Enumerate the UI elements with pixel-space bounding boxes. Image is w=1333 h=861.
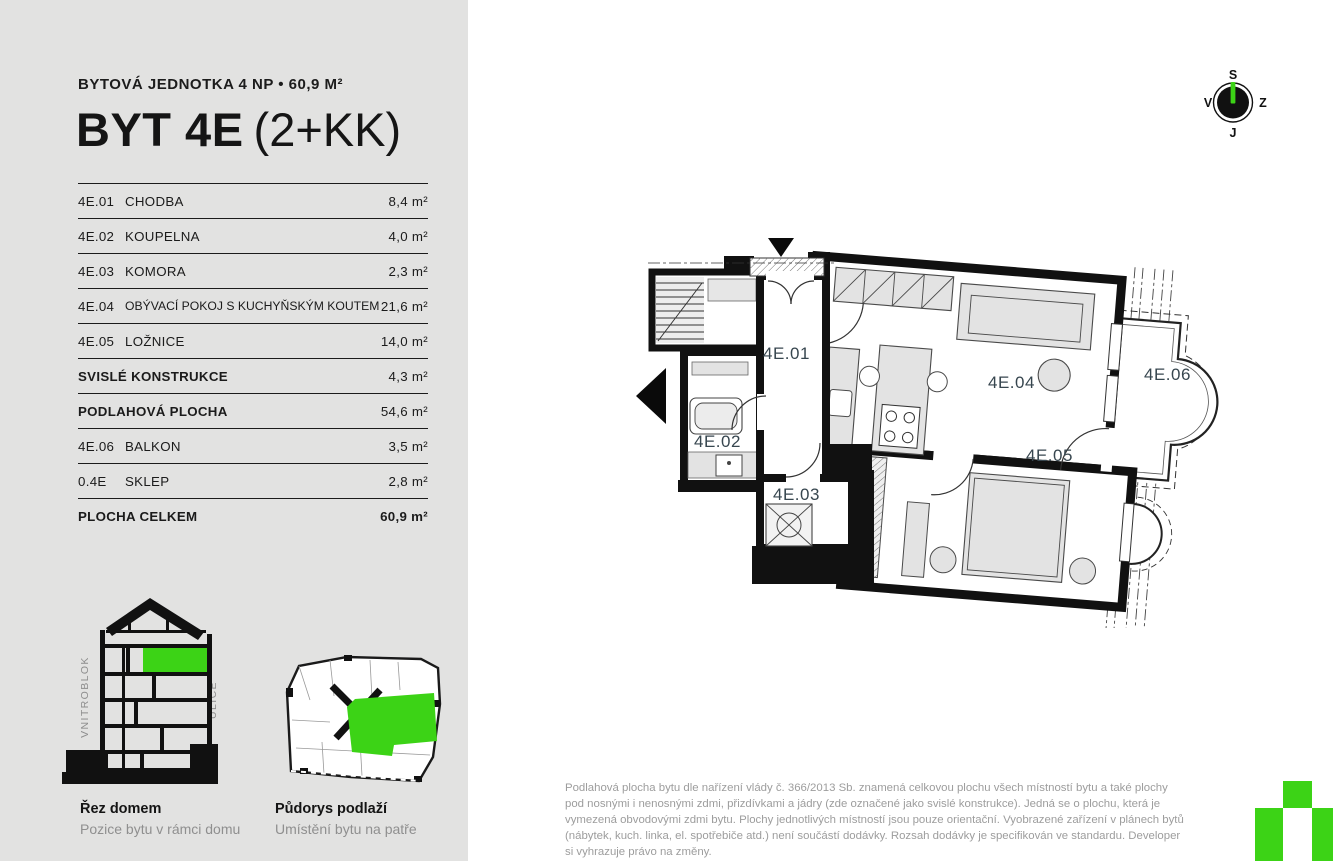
room-code: 4E.04 (78, 299, 125, 314)
bed (962, 473, 1070, 583)
room-label-hallway: 4E.01 (763, 344, 810, 363)
section-label-left: VNITROBLOK (79, 656, 91, 738)
logo-block-right (1312, 808, 1333, 861)
bathroom-shelf (692, 362, 748, 375)
room-code: 4E.02 (78, 229, 125, 244)
table-row: 4E.03KOMORA2,3 m² (78, 253, 428, 288)
room-label-balcony: 4E.06 (1144, 365, 1191, 384)
room-area: 60,9 m² (380, 509, 428, 524)
apartment-sheet: BYTOVÁ JEDNOTKA 4 NP • 60,9 M² BYT 4E(2+… (0, 0, 1333, 861)
room-label-bedroom: 4E.05 (1026, 446, 1073, 465)
compass-label-west: V (1204, 96, 1213, 110)
door-gap (757, 394, 767, 430)
room-code: 0.4E (78, 474, 125, 489)
area-table: 4E.01CHODBA8,4 m² 4E.02KOUPELNA4,0 m² 4E… (78, 183, 428, 533)
logo-block-left (1255, 808, 1283, 861)
compass-label-south: J (1230, 126, 1237, 140)
table-row: 4E.04OBÝVACÍ POKOJ S KUCHYŇSKÝM KOUTEM21… (78, 288, 428, 323)
room-name: KOUPELNA (125, 229, 389, 244)
bathtub-inner (695, 403, 737, 429)
stair-landing (708, 279, 756, 301)
stove (879, 404, 920, 448)
room-area: 2,8 m² (389, 474, 428, 489)
room-balcony (1110, 318, 1223, 484)
room-name: OBÝVACÍ POKOJ S KUCHYŇSKÝM KOUTEM (125, 299, 381, 313)
room-name: PLOCHA CELKEM (78, 509, 380, 524)
door-gap (766, 271, 814, 282)
unit-subtitle: BYTOVÁ JEDNOTKA 4 NP • 60,9 M² (78, 76, 343, 93)
table-row: 0.4ESKLEP2,8 m² (78, 463, 428, 498)
bay-rail (1129, 504, 1164, 566)
table-row: 4E.01CHODBA8,4 m² (78, 183, 428, 218)
room-area: 21,6 m² (381, 299, 428, 314)
floor-overview-diagram (265, 648, 450, 800)
sink (828, 389, 852, 417)
drain (727, 461, 731, 465)
room-name: CHODBA (125, 194, 389, 209)
table-row: 4E.05LOŽNICE14,0 m² (78, 323, 428, 358)
page-title: BYT 4E(2+KK) (76, 102, 401, 157)
table-row-total: PLOCHA CELKEM60,9 m² (78, 498, 428, 533)
room-label-bathroom: 4E.02 (694, 432, 741, 451)
compass-label-east: Z (1259, 96, 1267, 110)
room-label-storage: 4E.03 (773, 485, 820, 504)
section-caption-subtitle: Pozice bytu v rámci domu (80, 821, 240, 837)
logo-block-top (1283, 781, 1312, 808)
room-code: 4E.06 (78, 439, 125, 454)
section-caption-title: Řez domem (80, 801, 161, 817)
sofa (957, 283, 1095, 350)
stairs (656, 277, 704, 343)
room-name: LOŽNICE (125, 334, 381, 349)
room-area: 2,3 m² (389, 264, 428, 279)
room-name: SKLEP (125, 474, 389, 489)
room-name: PODLAHOVÁ PLOCHA (78, 404, 381, 419)
floor-caption-subtitle: Umístění bytu na patře (275, 821, 417, 837)
disclaimer-text: Podlahová plocha bytu dle nařízení vlády… (565, 780, 1189, 860)
room-area: 3,5 m² (389, 439, 428, 454)
room-name: BALKON (125, 439, 389, 454)
room-label-living: 4E.04 (988, 373, 1035, 392)
room-area: 4,3 m² (389, 369, 428, 384)
compass-rose-icon: S Z J V (1196, 58, 1272, 142)
room-name: SVISLÉ KONSTRUKCE (78, 369, 389, 384)
table-row: SVISLÉ KONSTRUKCE4,3 m² (78, 358, 428, 393)
room-area: 4,0 m² (389, 229, 428, 244)
room-hallway (760, 276, 826, 478)
compass-needle-north (1231, 82, 1236, 104)
room-name: KOMORA (125, 264, 389, 279)
room-code: 4E.05 (78, 334, 125, 349)
table-row: PODLAHOVÁ PLOCHA54,6 m² (78, 393, 428, 428)
door-gap (786, 473, 820, 483)
room-code: 4E.01 (78, 194, 125, 209)
building-section-diagram: VNITROBLOK ULICE (55, 585, 230, 795)
unit-layout: (2+KK) (254, 103, 402, 156)
room-area: 8,4 m² (389, 194, 428, 209)
unit-name: BYT 4E (76, 103, 244, 156)
room-area: 54,6 m² (381, 404, 428, 419)
washbasin (716, 455, 742, 476)
wall-marker-arrow-icon (636, 368, 666, 424)
floor-caption-title: Půdorys podlaží (275, 801, 387, 817)
room-area: 14,0 m² (381, 334, 428, 349)
entrance-arrow-icon (768, 238, 794, 257)
floorplan: 4E.01 4E.02 4E.03 4E.04 4E.05 4E.06 (560, 228, 1240, 628)
table-row: 4E.06BALKON3,5 m² (78, 428, 428, 463)
room-code: 4E.03 (78, 264, 125, 279)
table-row: 4E.02KOUPELNA4,0 m² (78, 218, 428, 253)
highlighted-unit (143, 648, 207, 672)
compass-label-north: S (1229, 68, 1237, 82)
